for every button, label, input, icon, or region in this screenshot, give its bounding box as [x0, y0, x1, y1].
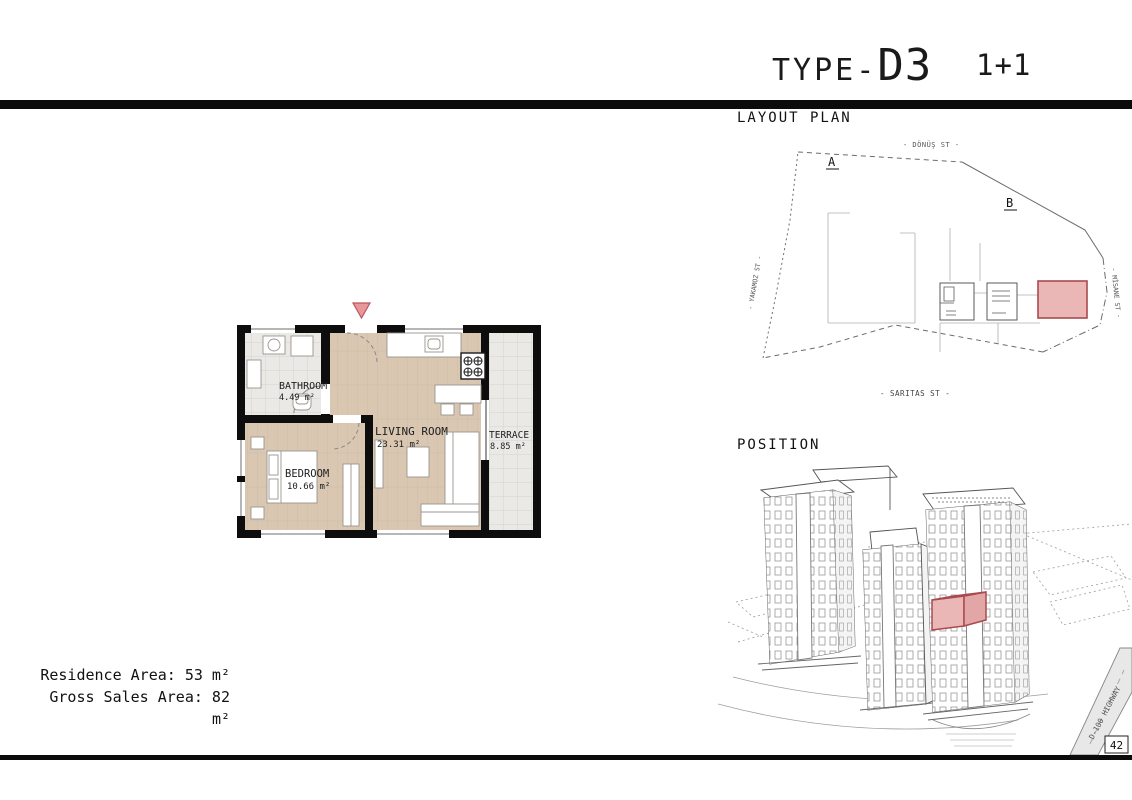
block-marker-b: B: [1006, 196, 1013, 210]
room-area-bedroom: 10.66 m²: [287, 482, 330, 492]
area-summary: Residence Area: 53 m² Gross Sales Area: …: [38, 664, 230, 730]
layout-plan-drawing: A B - DÖNÜŞ ST - - SARITAS ST - - YAKAMO…: [740, 133, 1132, 405]
top-divider-bar: [0, 100, 1132, 109]
highway: D-100 HIGHWAY 42: [1070, 648, 1132, 755]
room-label-bedroom: BEDROOM: [285, 468, 329, 480]
gross-sales-area-line: Gross Sales Area: 82 m²: [38, 686, 230, 730]
room-area-living: 23.31 m²: [377, 440, 420, 450]
layout-plan-heading: LAYOUT PLAN: [737, 110, 852, 126]
site-boundary: [763, 152, 1107, 358]
room-area-terrace: 8.85 m²: [490, 442, 526, 452]
entry-marker-icon: [353, 303, 370, 318]
room-area-bathroom: 4.49 m²: [279, 393, 315, 403]
room-label-bathroom: BATHROOM: [279, 381, 327, 392]
street-label-left: - YAKAMOZ ST -: [746, 255, 763, 310]
room-label-living: LIVING ROOM: [375, 425, 448, 438]
type-code: D3: [877, 40, 932, 91]
layout-highlighted-unit: [1038, 281, 1087, 318]
page-title: TYPE-D3: [772, 40, 932, 91]
road-badge: 42: [1110, 739, 1123, 752]
building-cores: [940, 283, 1017, 320]
block-marker-a: A: [828, 155, 836, 169]
floor-plan-drawing: BATHROOM 4.49 m² LIVING ROOM 23.31 m² BE…: [237, 300, 541, 542]
street-label-right: - MİSANE ST -: [1109, 267, 1123, 319]
room-label-terrace: TERRACE: [489, 430, 529, 441]
position-drawing: D-100 HIGHWAY 42: [718, 452, 1132, 755]
bottom-divider-bar: [0, 755, 1132, 760]
street-label-bottom: - SARITAS ST -: [880, 389, 950, 398]
type-label: TYPE-: [772, 53, 877, 88]
street-label-top: - DÖNÜŞ ST -: [903, 140, 960, 149]
position-heading: POSITION: [737, 437, 820, 453]
residence-area-line: Residence Area: 53 m²: [38, 664, 230, 686]
tower-left: [758, 480, 861, 670]
unit-type-label: 1+1: [976, 48, 1031, 82]
plan-sheet: TYPE-D3 1+1: [0, 0, 1132, 800]
